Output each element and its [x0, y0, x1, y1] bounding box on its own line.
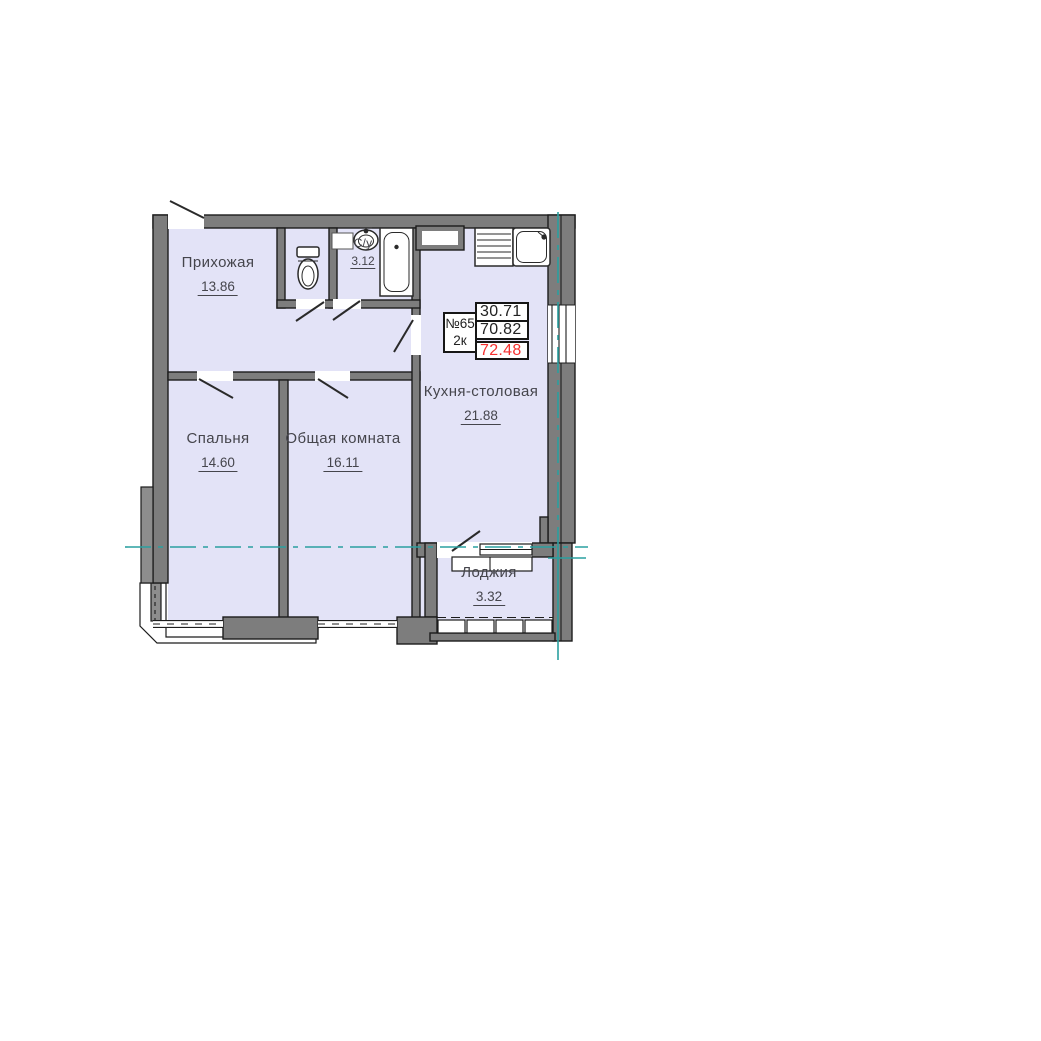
room-name: Спальня — [186, 430, 249, 447]
room-label-bedroom: Спальня 14.60 — [186, 430, 249, 472]
bathtub-icon — [380, 228, 413, 296]
unit-info-box: №65 2к 30.71 70.82 72.48 — [443, 302, 535, 362]
unit-rooms-count: 2к — [453, 333, 466, 349]
unit-number: №65 — [445, 316, 475, 332]
toilet-icon — [297, 247, 319, 289]
room-name: Кухня-столовая — [424, 383, 538, 400]
room-area: 21.88 — [461, 408, 501, 425]
room-label-kitchen: Кухня-столовая 21.88 — [424, 383, 538, 425]
kitchen-sink-icon — [475, 228, 550, 266]
unit-area-excl-loggia: 70.82 — [475, 320, 529, 340]
room-label-hallway: Прихожая 13.86 — [182, 254, 255, 296]
room-name: Лоджия — [461, 564, 517, 581]
floor-plan-drawing — [0, 0, 1041, 1041]
room-area: 3.32 — [473, 589, 505, 606]
room-area: 3.12 — [350, 254, 375, 269]
room-name: С/у — [350, 236, 375, 250]
vent-duct — [416, 226, 464, 250]
floor-plan-page: С/у 1.25 — [0, 0, 1041, 1041]
unit-total-area: 72.48 — [475, 341, 529, 360]
room-area: 16.11 — [324, 455, 363, 472]
room-name: Прихожая — [182, 254, 255, 271]
room-label-loggia: Лоджия 3.32 — [461, 564, 517, 606]
room-area: 13.86 — [198, 279, 238, 296]
room-area: 14.60 — [198, 455, 238, 472]
room-name: Общая комната — [285, 430, 400, 447]
unit-id-cell: №65 2к — [443, 312, 477, 353]
room-label-living: Общая комната 16.11 — [285, 430, 400, 472]
room-label-wc2: С/у 3.12 — [350, 236, 375, 270]
unit-living-area: 30.71 — [475, 302, 529, 322]
